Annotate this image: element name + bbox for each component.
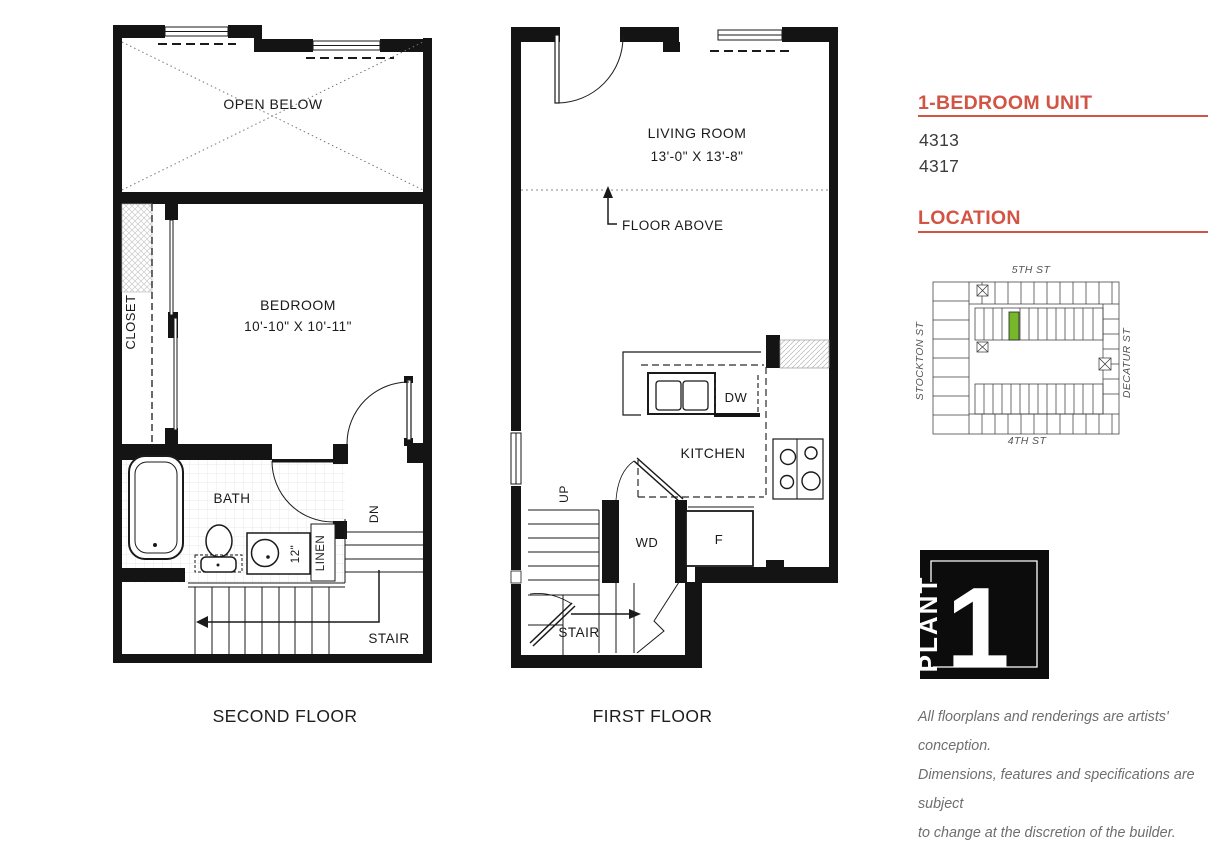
bath-label: BATH bbox=[213, 491, 250, 506]
washer-dryer-door bbox=[616, 458, 683, 502]
open-below-label: OPEN BELOW bbox=[223, 96, 322, 112]
second-floor-plan: OPEN BELOW CLOSET BEDROOM 10'-10" X 10'-… bbox=[108, 14, 438, 664]
second-floor-caption: SECOND FLOOR bbox=[120, 706, 450, 727]
fridge-label: F bbox=[715, 532, 723, 547]
up-label: UP bbox=[557, 485, 571, 503]
street-left-label: STOCKTON ST bbox=[914, 320, 926, 400]
site-plan-building bbox=[933, 282, 1119, 434]
linen-depth-label: 12" bbox=[290, 545, 302, 563]
living-room-label: LIVING ROOM bbox=[648, 125, 747, 141]
plan-logo: PLANT 1 bbox=[920, 550, 1049, 679]
washer-dryer-label: WD bbox=[636, 535, 659, 550]
floor-above-arrow bbox=[603, 186, 617, 224]
stair-label-first: STAIR bbox=[558, 625, 599, 640]
deck-hatch bbox=[780, 340, 829, 368]
street-bottom-label: 4TH ST bbox=[1008, 435, 1048, 447]
kitchen-label: KITCHEN bbox=[681, 445, 746, 461]
disclaimer: All floorplans and renderings are artist… bbox=[918, 703, 1228, 848]
unit-numbers: 4313 4317 bbox=[919, 127, 959, 179]
unit-heading-rule bbox=[918, 115, 1208, 117]
disclaimer-line: to change at the discretion of the build… bbox=[918, 819, 1228, 848]
logo-number: 1 bbox=[946, 565, 1009, 679]
logo-word: PLANT bbox=[920, 576, 943, 673]
first-floor-caption: FIRST FLOOR bbox=[485, 706, 820, 727]
street-top-label: 5TH ST bbox=[1012, 264, 1052, 276]
first-floor-plan: FLOOR ABOVE LIVING ROOM 13'-0" X 13'-8" … bbox=[505, 20, 840, 668]
dishwasher-label: DW bbox=[725, 390, 748, 405]
bedroom-dims: 10'-10" X 10'-11" bbox=[244, 319, 352, 334]
street-right-label: DECATUR ST bbox=[1121, 327, 1133, 398]
unit-number: 4313 bbox=[919, 127, 959, 153]
bathtub bbox=[129, 456, 183, 559]
disclaimer-line: All floorplans and renderings are artist… bbox=[918, 703, 1228, 761]
bedroom-label: BEDROOM bbox=[260, 297, 336, 313]
closet-hatch bbox=[122, 204, 152, 292]
linen-label: LINEN bbox=[315, 535, 327, 571]
open-below-area bbox=[122, 42, 423, 190]
kitchen-sink bbox=[648, 373, 715, 414]
location-map: 5TH ST 4TH ST STOCKTON ST DECATUR ST bbox=[913, 258, 1153, 458]
first-floor-windows bbox=[511, 30, 782, 583]
location-heading-rule bbox=[918, 231, 1208, 233]
stair-core-symbols bbox=[977, 285, 1111, 370]
entry-door bbox=[555, 35, 623, 103]
closet-label: CLOSET bbox=[123, 294, 138, 349]
floor-above-label: FLOOR ABOVE bbox=[622, 218, 724, 233]
living-room-dims: 13'-0" X 13'-8" bbox=[651, 149, 744, 164]
range-stove bbox=[773, 439, 823, 499]
location-heading: LOCATION bbox=[918, 207, 1021, 230]
unit-heading: 1-BEDROOM UNIT bbox=[918, 92, 1092, 115]
unit-number: 4317 bbox=[919, 153, 959, 179]
dn-label: DN bbox=[367, 505, 381, 523]
stair-up-arrow bbox=[571, 609, 641, 619]
highlighted-unit bbox=[1009, 312, 1019, 340]
stair-label-second: STAIR bbox=[368, 631, 409, 646]
disclaimer-line: Dimensions, features and specifications … bbox=[918, 761, 1228, 819]
bedroom-door bbox=[347, 376, 413, 446]
